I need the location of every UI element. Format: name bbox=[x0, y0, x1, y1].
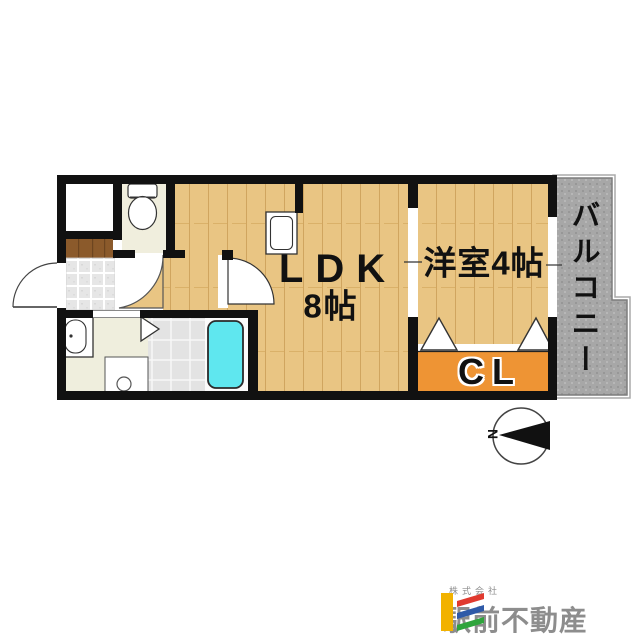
genkan-tile-floor bbox=[66, 258, 115, 310]
logo-mark bbox=[440, 583, 486, 633]
balcony-label: バルコニー bbox=[563, 186, 603, 394]
logo-bar-yellow bbox=[441, 593, 453, 631]
entry-step bbox=[66, 239, 113, 258]
logo-stripe-blue bbox=[457, 605, 484, 619]
washing-machine-pan bbox=[105, 357, 148, 395]
logo-stripe-green bbox=[457, 617, 484, 631]
entrance-door bbox=[13, 263, 57, 307]
ldk-label: LDK bbox=[279, 249, 397, 289]
entrance-door-gap bbox=[57, 263, 66, 308]
compass-north-label: N bbox=[485, 429, 501, 439]
ldk-size-label: 8帖 bbox=[303, 290, 358, 323]
toilet-fixture bbox=[128, 184, 157, 230]
company-logo: 株式会社 駅前不動産 bbox=[440, 583, 588, 639]
compass bbox=[493, 408, 550, 464]
logo-stripe-red bbox=[457, 593, 484, 607]
washroom-door-gap bbox=[93, 311, 140, 318]
washbasin bbox=[62, 316, 93, 357]
storage-room bbox=[64, 184, 113, 231]
closet-label: CL bbox=[458, 354, 522, 390]
western-room-label: 洋室4帖 bbox=[423, 247, 544, 280]
hall-door-gap bbox=[218, 255, 228, 308]
floorplan-page: LDK 8帖 洋室4帖 CL バルコニー N 株式会社 駅前不動産 bbox=[0, 0, 640, 640]
bathtub bbox=[208, 321, 243, 388]
